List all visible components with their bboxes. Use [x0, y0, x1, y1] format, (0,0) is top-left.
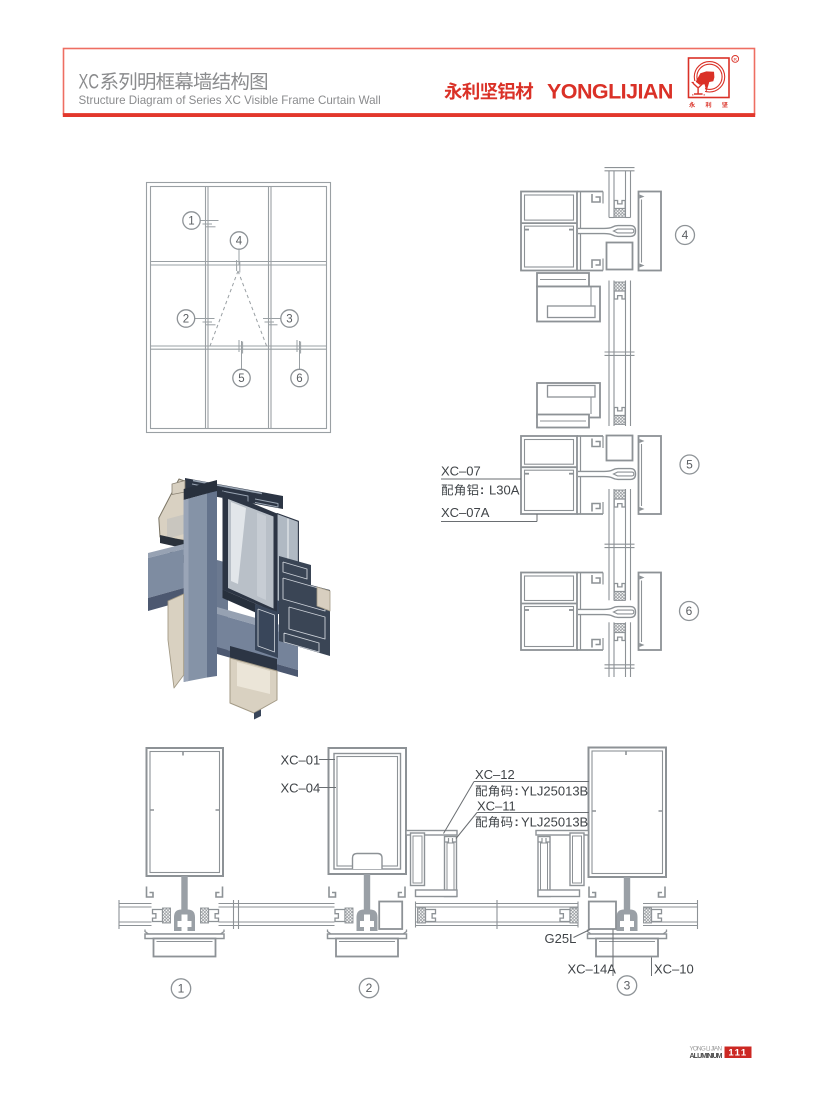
svg-text:4: 4 [236, 236, 243, 248]
svg-text:1: 1 [178, 982, 185, 996]
svg-text::: : [515, 815, 519, 829]
svg-text:XC–04: XC–04 [281, 781, 321, 796]
svg-text:6: 6 [686, 604, 693, 618]
svg-text:XC–11: XC–11 [477, 799, 516, 814]
svg-text:3: 3 [624, 979, 631, 993]
svg-text:1: 1 [188, 216, 194, 228]
svg-text:5: 5 [238, 373, 244, 385]
svg-text:ALUMINIUM: ALUMINIUM [690, 1053, 723, 1060]
svg-text:4: 4 [682, 228, 689, 242]
svg-text:YLJ25013B: YLJ25013B [521, 784, 588, 799]
svg-text:R: R [734, 57, 738, 63]
svg-text:2: 2 [366, 981, 373, 995]
svg-text:XC–07: XC–07 [441, 464, 481, 479]
svg-text:2: 2 [183, 314, 189, 326]
svg-text:XC–12: XC–12 [475, 767, 515, 782]
svg-text:XC: XC [79, 71, 100, 94]
svg-text:YONGLIJIAN: YONGLIJIAN [547, 80, 673, 104]
svg-text:YLJ25013B: YLJ25013B [521, 815, 588, 830]
svg-text:111: 111 [728, 1048, 747, 1059]
svg-text:Structure Diagram of Series XC: Structure Diagram of Series XC Visible F… [79, 94, 381, 107]
svg-text:XC–01: XC–01 [281, 753, 321, 768]
svg-text:G25L: G25L [545, 931, 577, 946]
svg-text:3: 3 [286, 314, 292, 326]
svg-text:L30A: L30A [489, 483, 520, 498]
svg-text:XC–07A: XC–07A [441, 505, 490, 520]
svg-text:5: 5 [686, 458, 693, 472]
svg-text::: : [480, 483, 484, 497]
svg-text::: : [515, 784, 519, 798]
svg-text:YONG LI JIAN: YONG LI JIAN [690, 1046, 723, 1053]
svg-text:XC–10: XC–10 [654, 962, 694, 977]
svg-text:XC–14A: XC–14A [568, 962, 617, 977]
svg-text:6: 6 [296, 373, 302, 385]
